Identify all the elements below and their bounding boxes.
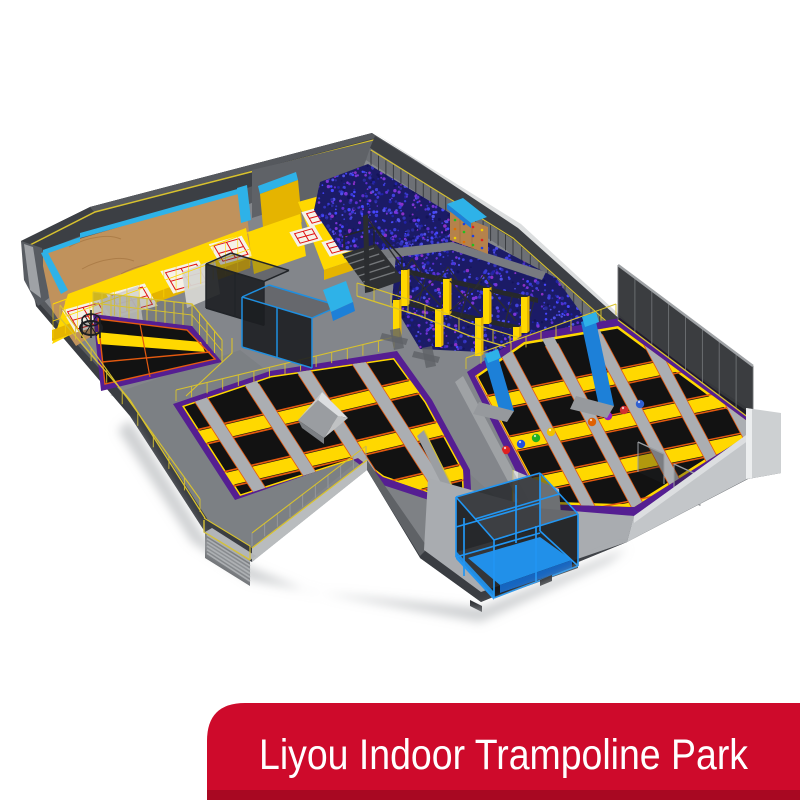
svg-text:Liyou Indoor Trampoline Park: Liyou Indoor Trampoline Park xyxy=(259,731,748,779)
